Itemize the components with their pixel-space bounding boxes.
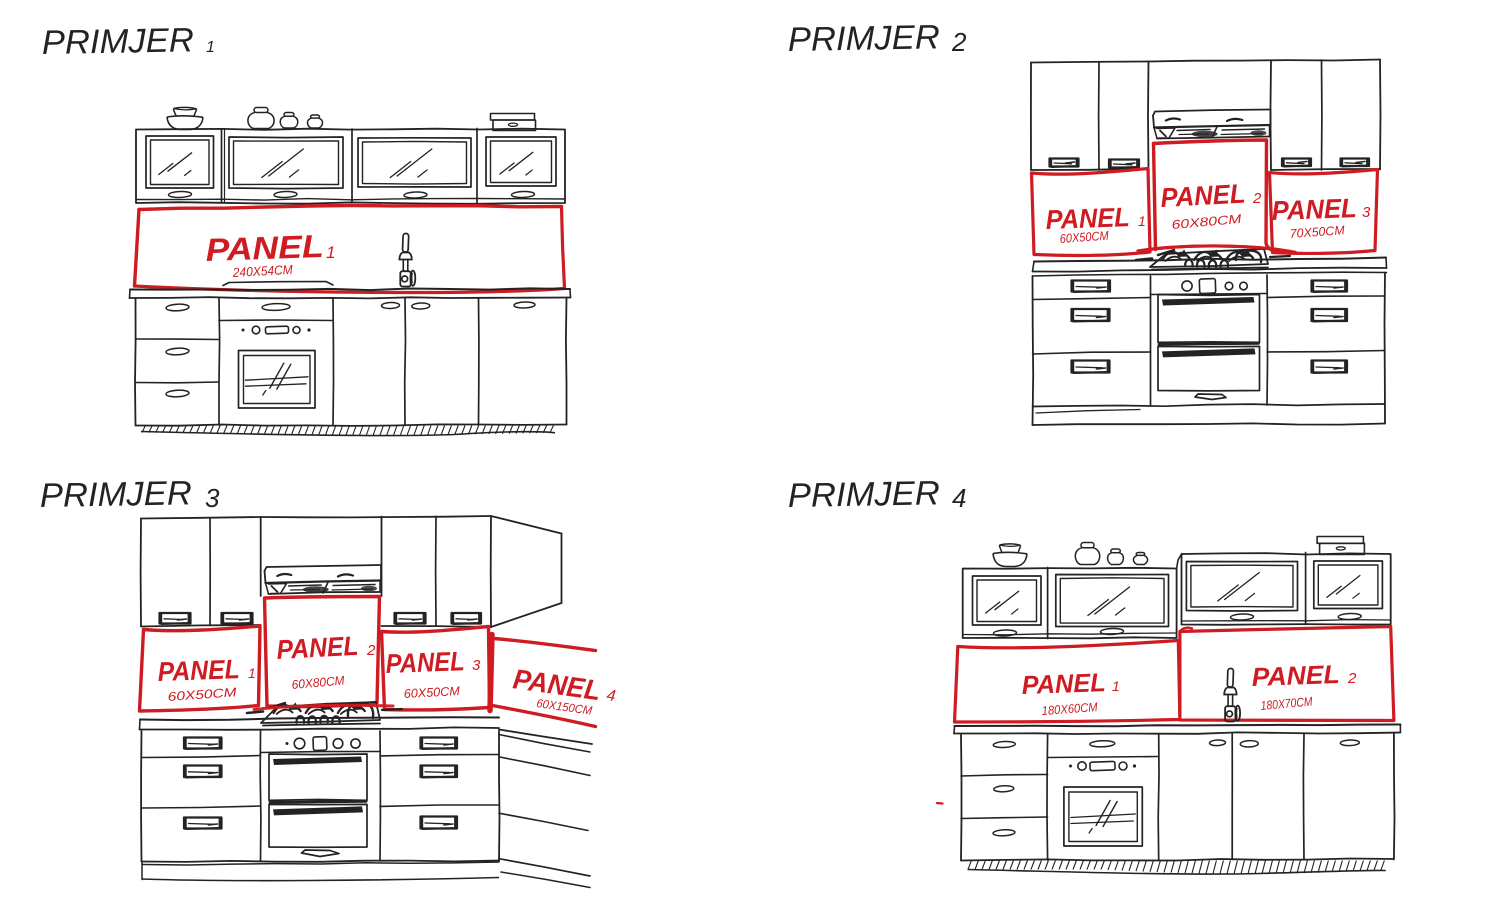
svg-text:PANEL: PANEL (157, 654, 240, 687)
svg-text:PANEL: PANEL (205, 228, 324, 268)
svg-text:1: 1 (326, 243, 335, 262)
svg-text:PANEL: PANEL (276, 631, 359, 665)
svg-text:PRIMJER: PRIMJER (787, 18, 940, 59)
svg-text:PANEL: PANEL (1160, 179, 1246, 213)
svg-text:PRIMJER: PRIMJER (39, 474, 192, 515)
svg-text:3: 3 (472, 657, 481, 674)
svg-text:3: 3 (205, 483, 220, 513)
svg-text:2: 2 (951, 27, 967, 57)
svg-text:PANEL: PANEL (385, 646, 465, 679)
svg-text:PANEL: PANEL (1271, 193, 1357, 226)
svg-text:1: 1 (1112, 678, 1120, 694)
svg-text:2: 2 (366, 642, 376, 659)
svg-text:3: 3 (1362, 204, 1371, 221)
svg-text:240X54CM: 240X54CM (231, 262, 293, 280)
svg-text:PANEL: PANEL (1251, 659, 1340, 692)
svg-text:1: 1 (1138, 213, 1146, 229)
svg-text:PANEL: PANEL (1021, 667, 1106, 700)
svg-text:1: 1 (206, 39, 215, 56)
svg-text:2: 2 (1347, 670, 1357, 687)
svg-text:2: 2 (1252, 190, 1262, 207)
svg-text:1: 1 (248, 665, 256, 681)
svg-text:60X50CM: 60X50CM (403, 684, 460, 701)
svg-text:4: 4 (952, 483, 966, 513)
svg-text:PRIMJER: PRIMJER (787, 474, 940, 515)
svg-text:PRIMJER: PRIMJER (41, 21, 194, 62)
